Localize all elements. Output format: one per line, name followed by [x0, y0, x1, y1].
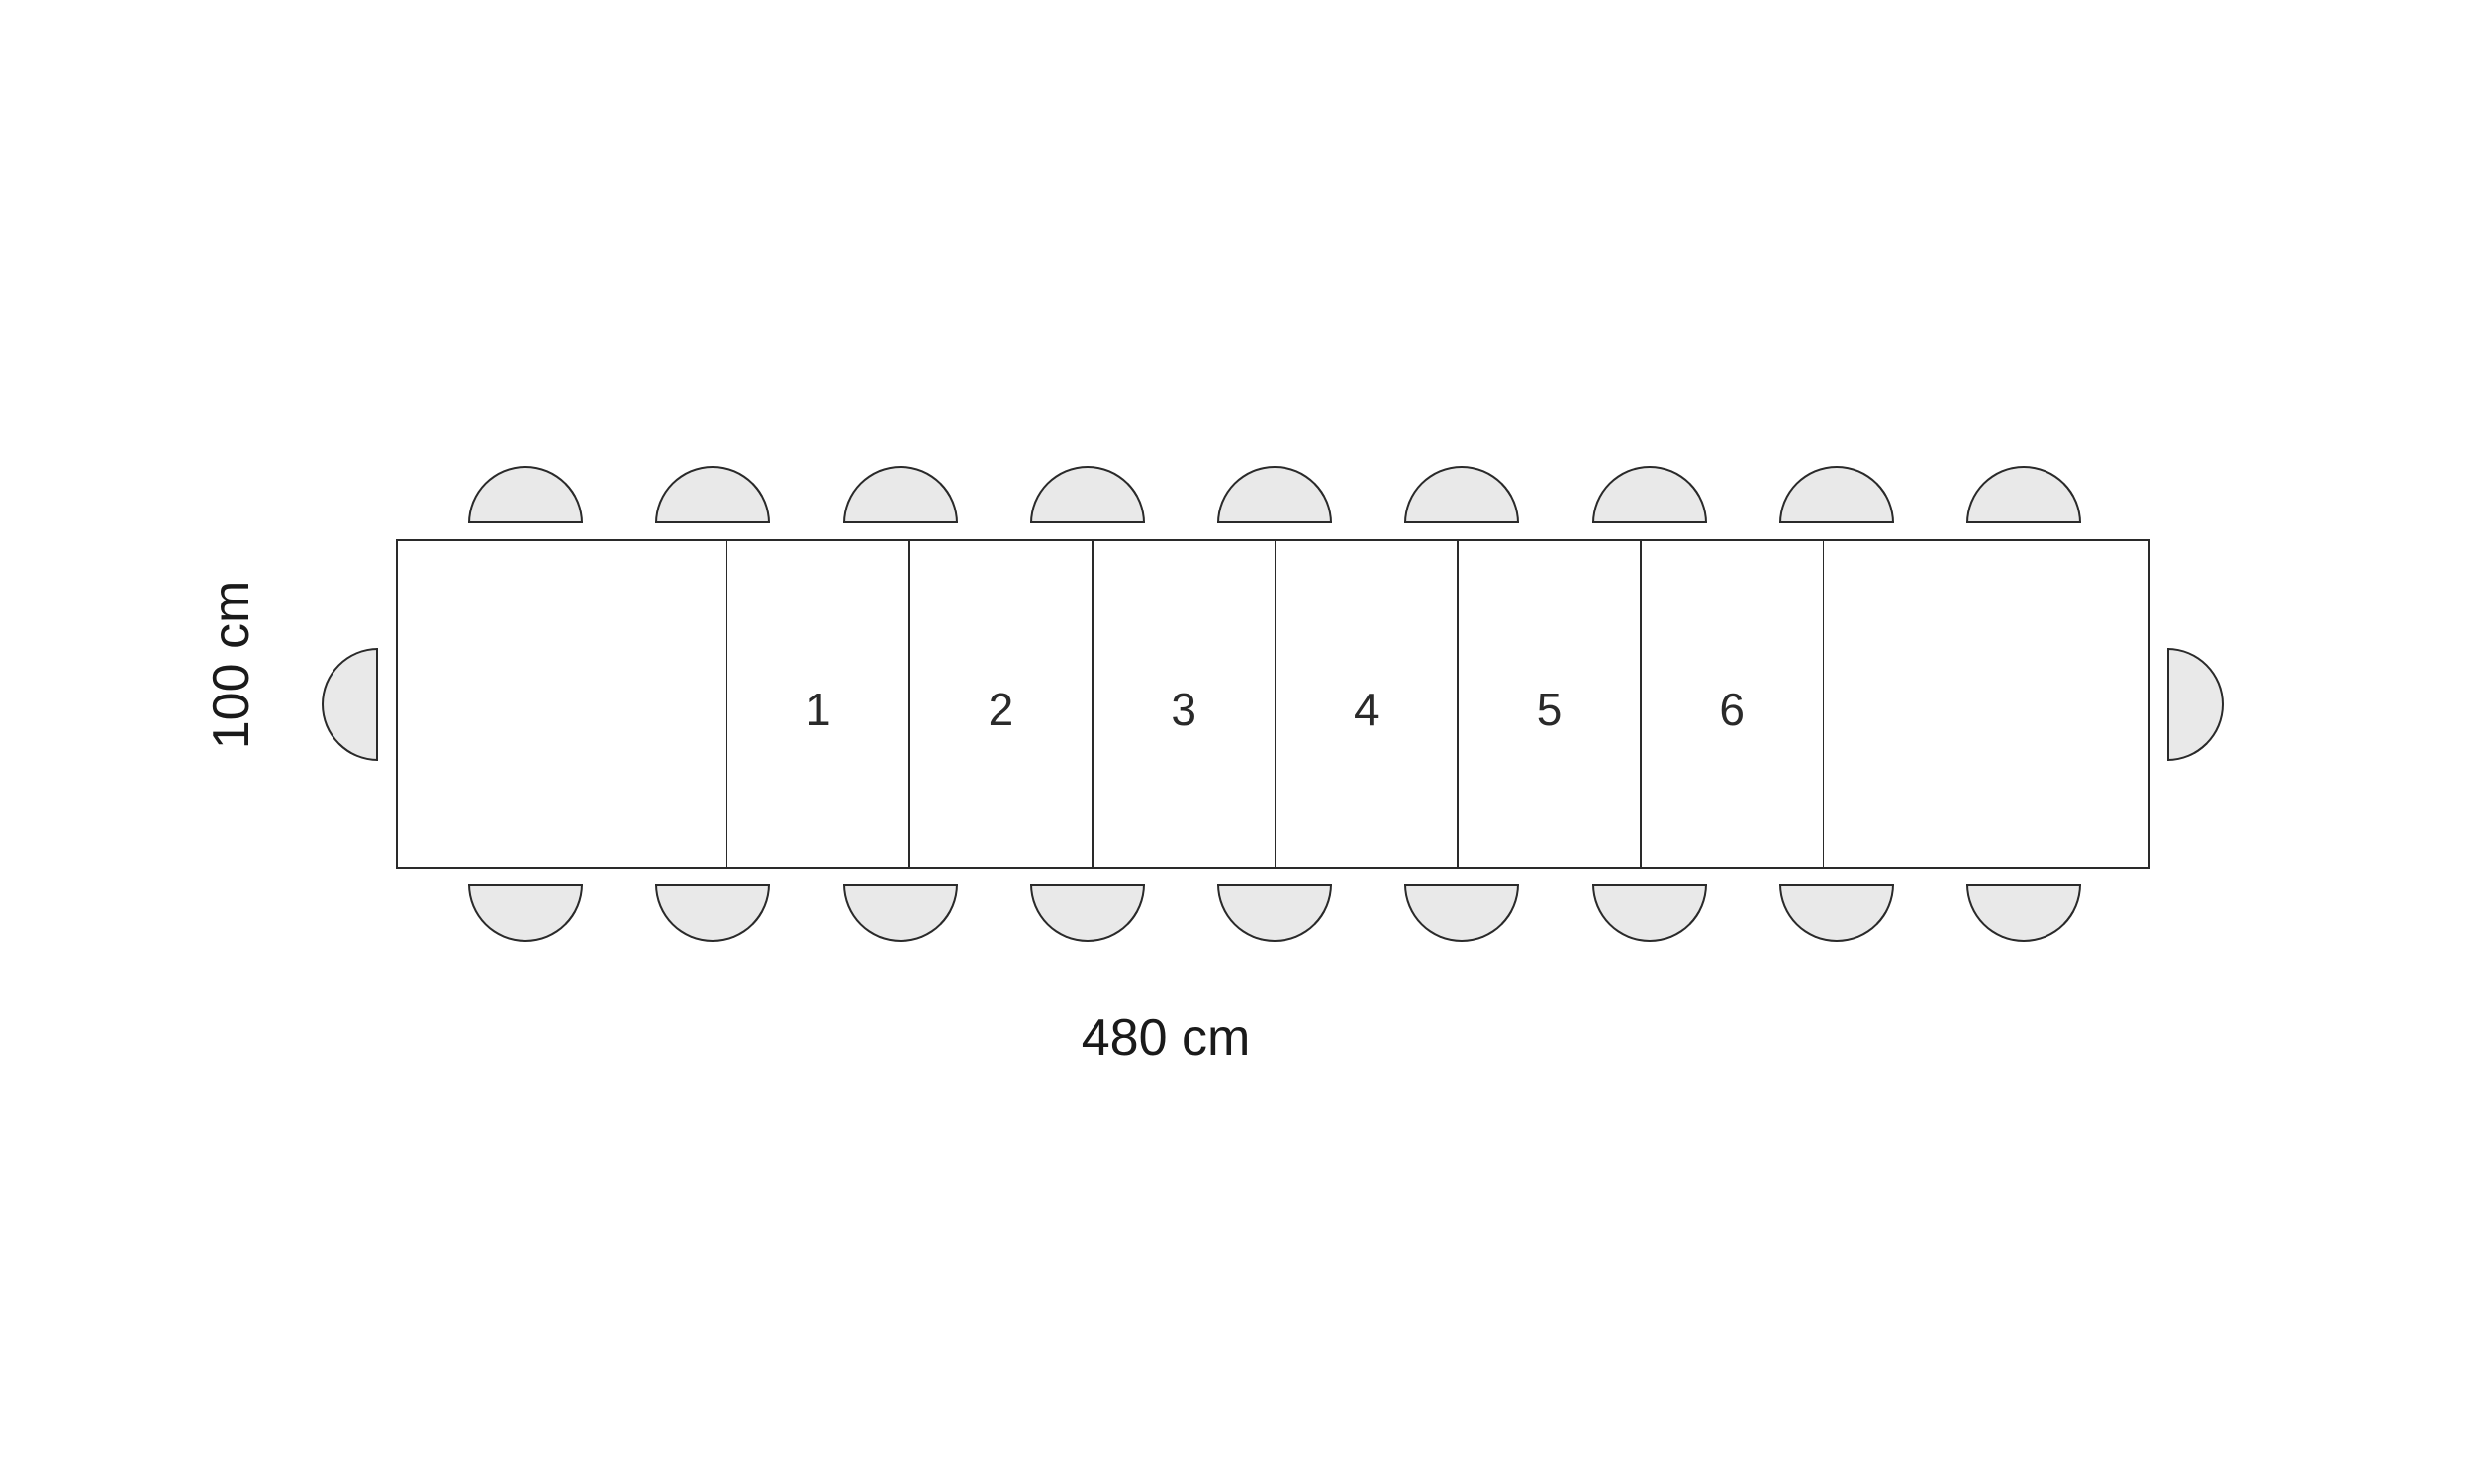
dining-table-outline: 123456 [396, 539, 2150, 869]
seat-top-6 [1404, 466, 1519, 523]
seat-top-7 [1592, 466, 1707, 523]
seat-top-5 [1217, 466, 1332, 523]
table-leaf-number: 2 [989, 687, 1014, 732]
table-leaf-number: 6 [1719, 687, 1745, 732]
seat-bottom-1 [468, 884, 583, 942]
table-leaf-number: 4 [1354, 687, 1380, 732]
table-leaf-divider [908, 541, 910, 867]
table-leaf-number: 3 [1171, 687, 1196, 732]
seat-bottom-7 [1592, 884, 1707, 942]
table-seating-plan-diagram: 100 cm 123456 480 cm [0, 0, 2474, 1484]
table-leaf-divider [1457, 541, 1459, 867]
table-leaf-divider [1640, 541, 1642, 867]
table-leaf-divider [1092, 541, 1094, 867]
seat-top-4 [1030, 466, 1145, 523]
table-depth-label: 100 cm [206, 581, 257, 750]
seat-left-end [322, 648, 378, 761]
seat-bottom-9 [1966, 884, 2081, 942]
table-leaf-divider [1823, 541, 1825, 867]
seat-top-3 [843, 466, 958, 523]
table-leaf-number: 1 [806, 687, 831, 732]
seat-bottom-4 [1030, 884, 1145, 942]
table-leaf-divider [726, 541, 728, 867]
seat-top-9 [1966, 466, 2081, 523]
table-leaf-number: 5 [1537, 687, 1563, 732]
seat-bottom-2 [655, 884, 770, 942]
table-leaf-divider [1275, 541, 1277, 867]
table-width-label: 480 cm [1082, 1012, 1251, 1064]
seat-top-2 [655, 466, 770, 523]
seat-bottom-3 [843, 884, 958, 942]
seat-bottom-6 [1404, 884, 1519, 942]
seat-bottom-8 [1779, 884, 1894, 942]
seat-right-end [2167, 648, 2224, 761]
seat-top-1 [468, 466, 583, 523]
seat-bottom-5 [1217, 884, 1332, 942]
seat-top-8 [1779, 466, 1894, 523]
